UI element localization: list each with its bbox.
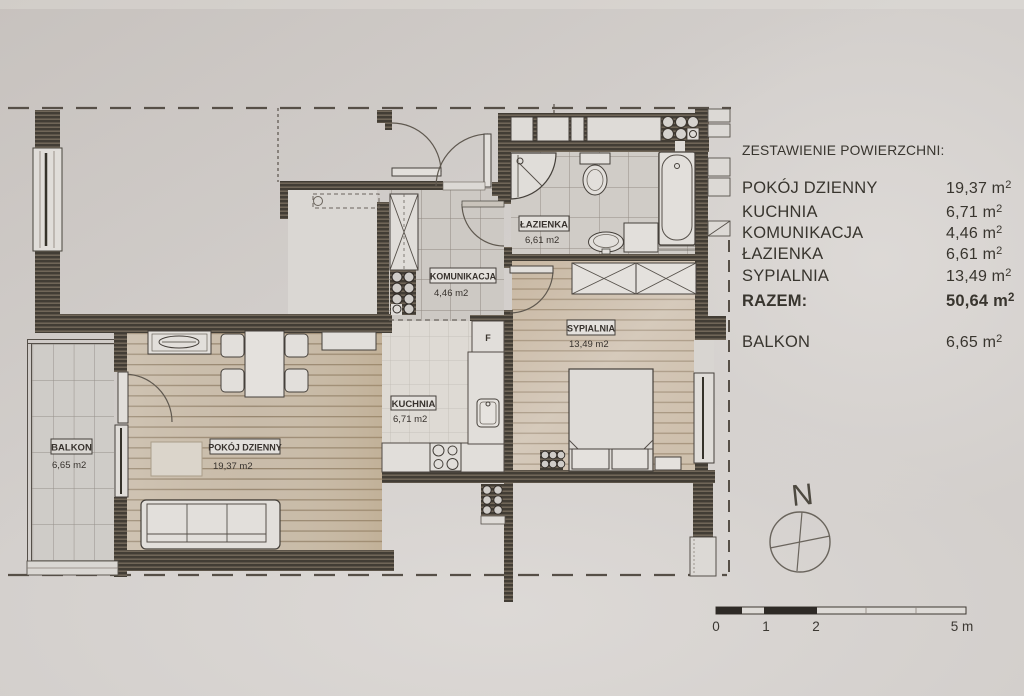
svg-text:19,37 m2: 19,37 m2 — [946, 179, 1012, 197]
svg-text:ŁAZIENKA: ŁAZIENKA — [742, 245, 823, 263]
svg-text:POKÓJ DZIENNY: POKÓJ DZIENNY — [742, 178, 878, 197]
svg-text:ŁAZIENKA: ŁAZIENKA — [520, 220, 568, 231]
svg-text:6,65 m2: 6,65 m2 — [946, 333, 1002, 351]
svg-text:KOMUNIKACJA: KOMUNIKACJA — [430, 272, 497, 282]
svg-text:13,49 m2: 13,49 m2 — [569, 339, 609, 350]
svg-text:RAZEM:: RAZEM: — [742, 292, 807, 310]
svg-text:1: 1 — [762, 619, 770, 634]
svg-text:BALKON: BALKON — [742, 333, 810, 351]
svg-text:6,71 m2: 6,71 m2 — [946, 203, 1002, 221]
svg-text:6,61 m2: 6,61 m2 — [946, 245, 1002, 263]
svg-text:2: 2 — [812, 619, 820, 634]
svg-text:6,65 m2: 6,65 m2 — [52, 460, 86, 471]
svg-text:13,49 m2: 13,49 m2 — [946, 267, 1012, 285]
svg-text:SYPIALNIA: SYPIALNIA — [567, 324, 616, 334]
svg-text:ZESTAWIENIE POWIERZCHNI:: ZESTAWIENIE POWIERZCHNI: — [742, 143, 945, 158]
svg-text:N: N — [790, 478, 815, 513]
svg-text:50,64 m2: 50,64 m2 — [946, 292, 1015, 310]
svg-text:5 m: 5 m — [951, 619, 974, 634]
svg-text:SYPIALNIA: SYPIALNIA — [742, 267, 829, 285]
svg-text:0: 0 — [712, 619, 720, 634]
svg-text:4,46 m2: 4,46 m2 — [434, 288, 468, 299]
svg-text:4,46 m2: 4,46 m2 — [946, 224, 1002, 242]
svg-text:KOMUNIKACJA: KOMUNIKACJA — [742, 224, 863, 242]
svg-text:BALKON: BALKON — [51, 443, 92, 454]
svg-text:KUCHNIA: KUCHNIA — [392, 399, 436, 410]
svg-text:6,61 m2: 6,61 m2 — [525, 235, 559, 246]
svg-text:6,71 m2: 6,71 m2 — [393, 414, 427, 425]
svg-text:POKÓJ DZIENNY: POKÓJ DZIENNY — [208, 442, 282, 453]
svg-text:F: F — [485, 333, 491, 343]
svg-text:19,37 m2: 19,37 m2 — [213, 461, 253, 472]
svg-text:KUCHNIA: KUCHNIA — [742, 203, 818, 221]
